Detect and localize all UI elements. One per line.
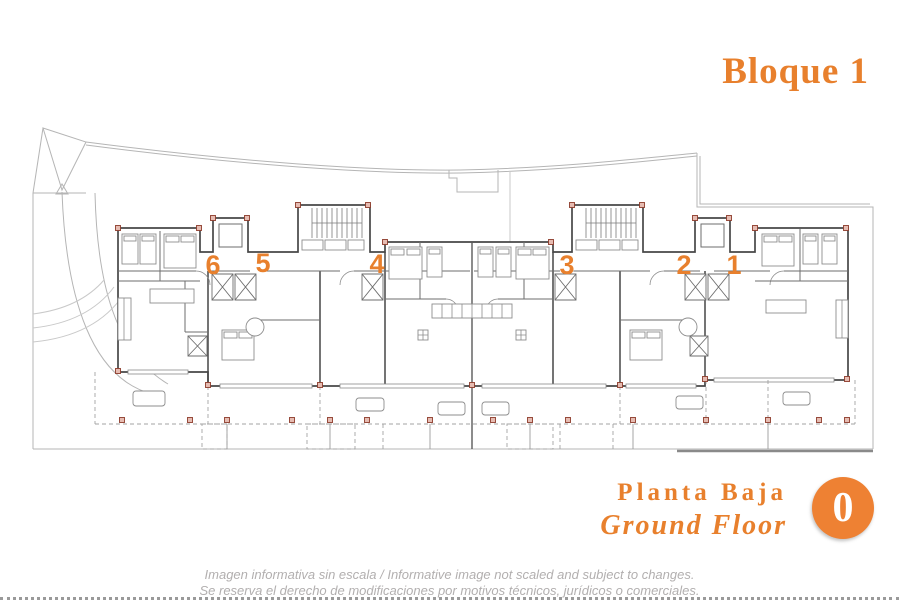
- unit-number-3: 3: [559, 250, 574, 280]
- driveway-arc: [33, 280, 104, 314]
- unit-number-4: 4: [369, 249, 384, 279]
- disclaimer: Imagen informativa sin escala / Informat…: [0, 567, 899, 599]
- floor-name-en: Ground Floor: [600, 510, 787, 542]
- unit-number-6: 6: [205, 250, 220, 280]
- floor-level-badge: 0: [812, 477, 874, 539]
- unit-number-2: 2: [676, 250, 691, 280]
- floor-level-number: 0: [833, 484, 854, 532]
- floor-name-es: Planta Baja: [600, 479, 787, 507]
- pillars: [120, 418, 850, 423]
- floor-label: Planta Baja Ground Floor: [600, 479, 787, 542]
- survey-triangle: [43, 128, 86, 190]
- unit-number-5: 5: [255, 248, 270, 278]
- driveway-arc: [33, 287, 114, 328]
- disclaimer-line-1: Imagen informativa sin escala / Informat…: [0, 567, 899, 583]
- unit-number-1: 1: [726, 250, 741, 280]
- block-title: Bloque 1: [722, 50, 869, 93]
- driveway-arc: [33, 294, 124, 342]
